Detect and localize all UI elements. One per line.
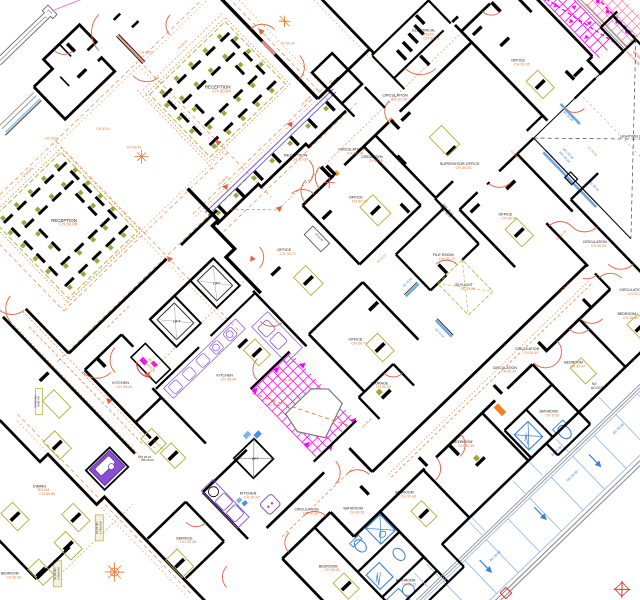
svg-text:CH 30.29: CH 30.29: [591, 244, 606, 248]
svg-text:CH 30.71: CH 30.71: [351, 342, 367, 346]
svg-text:CH 30.45: CH 30.45: [458, 444, 474, 448]
svg-text:CH 30.44: CH 30.44: [116, 385, 132, 389]
svg-text:CH 30.08: CH 30.08: [455, 166, 471, 170]
svg-text:RB 28.02: RB 28.02: [141, 458, 154, 462]
svg-text:CH 30.00: CH 30.00: [267, 403, 281, 407]
svg-text:CH 30.71: CH 30.71: [280, 252, 296, 256]
svg-text:CH 30.00: CH 30.00: [278, 378, 291, 382]
svg-text:HB 29.01: HB 29.01: [34, 395, 38, 408]
svg-text:CH 30.28: CH 30.28: [369, 159, 383, 163]
svg-text:CH 30.65: CH 30.65: [39, 492, 55, 496]
svg-text:LIFT: LIFT: [213, 282, 221, 286]
svg-text:HB 29.01: HB 29.01: [95, 522, 99, 535]
svg-text:CH 30.40: CH 30.40: [523, 351, 538, 355]
svg-text:CH 30.47: CH 30.47: [244, 495, 260, 499]
svg-text:CH 30.31: CH 30.31: [402, 582, 416, 586]
svg-text:LIFT: LIFT: [252, 457, 259, 461]
svg-text:CH 30.42: CH 30.42: [376, 385, 391, 389]
svg-text:CH 30.46: CH 30.46: [180, 540, 196, 544]
svg-text:CH 30.04: CH 30.04: [96, 127, 110, 131]
svg-text:CH 30.16: CH 30.16: [423, 36, 439, 40]
svg-text:CH 30.46: CH 30.46: [623, 316, 638, 320]
svg-text:CH 30.29: CH 30.29: [501, 370, 516, 374]
svg-text:CH 30.28: CH 30.28: [628, 292, 640, 296]
svg-text:SK 31.00: SK 31.00: [460, 287, 475, 291]
svg-text:CH 30.08: CH 30.08: [391, 98, 407, 102]
svg-text:CH 30.04: CH 30.04: [45, 137, 59, 141]
svg-text:CH 30.28: CH 30.28: [6, 575, 20, 579]
svg-text:CH 30.08: CH 30.08: [59, 222, 78, 227]
svg-text:CH 30.48: CH 30.48: [401, 495, 416, 499]
svg-text:CH 30.30: CH 30.30: [546, 414, 560, 418]
svg-text:CH 30.44: CH 30.44: [220, 378, 236, 382]
svg-text:CH 30.28: CH 30.28: [350, 511, 364, 515]
svg-text:LIFT: LIFT: [173, 320, 181, 324]
svg-text:CH 30.28: CH 30.28: [324, 568, 339, 572]
svg-text:CH 30.04: CH 30.04: [127, 146, 141, 150]
svg-text:CH 30.04: CH 30.04: [281, 42, 295, 46]
svg-text:CH 30.05: CH 30.05: [514, 62, 530, 66]
svg-text:CH 30.04: CH 30.04: [139, 50, 153, 54]
svg-text:CH 30.04: CH 30.04: [212, 89, 231, 94]
